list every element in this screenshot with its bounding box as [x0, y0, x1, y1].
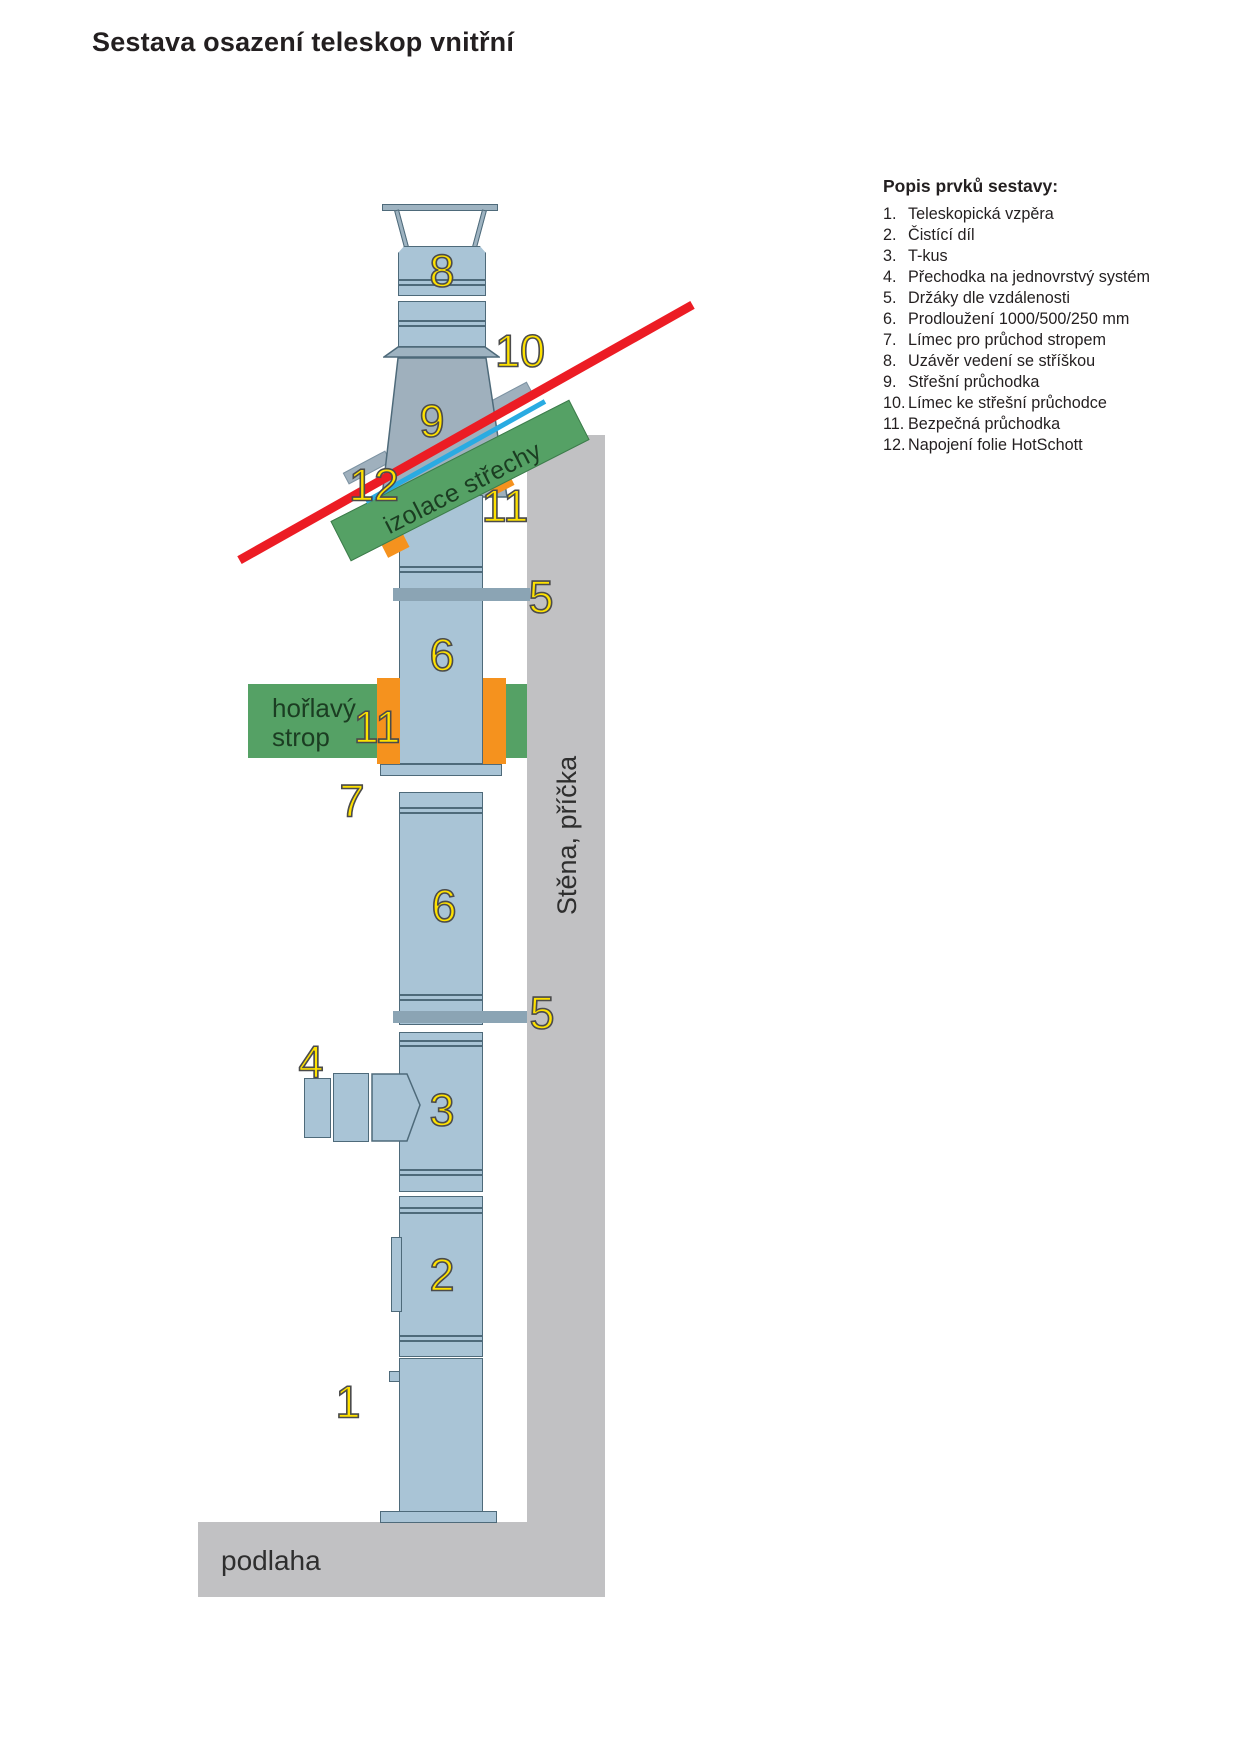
page-title: Sestava osazení teleskop vnitřní: [92, 27, 514, 58]
flammable-ceiling-label-line1: hořlavý: [272, 694, 356, 723]
joint-line: [399, 807, 483, 814]
cleaning-door: [391, 1237, 402, 1312]
callout-2: 2: [429, 1253, 454, 1298]
legend-item-num: 10.: [883, 393, 908, 414]
rain-cap-plate: [382, 204, 498, 211]
rain-cap-leg-left: [394, 209, 409, 249]
legend-item-text: Bezpečná průchodka: [908, 415, 1060, 433]
legend-heading: Popis prvků sestavy:: [883, 176, 1183, 197]
legend-item-1: 1.Teleskopická vzpěra: [883, 204, 1183, 225]
legend-item-text: Napojení folie HotSchott: [908, 436, 1083, 454]
flammable-ceiling-label-line2: strop: [272, 723, 356, 752]
callout-4: 4: [298, 1040, 323, 1085]
legend-item-num: 5.: [883, 288, 908, 309]
legend-item-12: 12.Napojení folie HotSchott: [883, 435, 1183, 456]
joint-line: [399, 566, 483, 573]
legend-item-5: 5.Držáky dle vzdálenosti: [883, 288, 1183, 309]
pipe-segment-base: [399, 1358, 483, 1512]
legend-item-text: Držáky dle vzdálenosti: [908, 289, 1070, 307]
callout-11-roof: 11: [482, 484, 529, 529]
legend-item-text: Límec ke střešní průchodce: [908, 394, 1107, 412]
callout-8: 8: [429, 249, 454, 294]
callout-7: 7: [339, 779, 364, 824]
legend-item-num: 4.: [883, 267, 908, 288]
legend-item-num: 11.: [883, 414, 908, 435]
legend: Popis prvků sestavy: 1.Teleskopická vzpě…: [883, 176, 1183, 456]
legend-item-10: 10.Límec ke střešní průchodce: [883, 393, 1183, 414]
floor-label: podlaha: [221, 1545, 321, 1577]
joint-line: [399, 1169, 483, 1176]
flammable-ceiling-label: hořlavý strop: [272, 694, 356, 752]
callout-10: 10: [495, 329, 545, 374]
legend-item-2: 2.Čistící díl: [883, 225, 1183, 246]
safe-penetration-block-right: [483, 678, 506, 764]
callout-11-ceiling: 11: [354, 705, 401, 750]
legend-item-text: Prodloužení 1000/500/250 mm: [908, 310, 1129, 328]
legend-item-num: 2.: [883, 225, 908, 246]
callout-12: 12: [349, 463, 399, 508]
branch-pointed-piece: [371, 1073, 421, 1142]
legend-item-num: 6.: [883, 309, 908, 330]
callout-6-upper: 6: [429, 633, 454, 678]
wall-bracket-upper: [393, 588, 530, 601]
legend-item-num: 9.: [883, 372, 908, 393]
base-flange: [380, 1511, 497, 1523]
legend-item-num: 1.: [883, 204, 908, 225]
legend-item-7: 7.Límec pro průchod stropem: [883, 330, 1183, 351]
legend-item-9: 9.Střešní průchodka: [883, 372, 1183, 393]
legend-item-8: 8.Uzávěr vedení se stříškou: [883, 351, 1183, 372]
legend-item-text: T-kus: [908, 247, 948, 265]
joint-line: [399, 1040, 483, 1047]
legend-item-text: Čistící díl: [908, 226, 975, 244]
legend-item-num: 8.: [883, 351, 908, 372]
legend-item-text: Přechodka na jednovrstvý systém: [908, 268, 1150, 286]
joint-line: [399, 1335, 483, 1342]
rain-cap-leg-right: [472, 209, 487, 249]
legend-item-4: 4.Přechodka na jednovrstvý systém: [883, 267, 1183, 288]
callout-1: 1: [335, 1380, 360, 1425]
legend-item-text: Teleskopická vzpěra: [908, 205, 1054, 223]
legend-item-6: 6.Prodloužení 1000/500/250 mm: [883, 309, 1183, 330]
legend-item-text: Střešní průchodka: [908, 373, 1039, 391]
callout-5-lower: 5: [529, 991, 554, 1036]
joint-line: [398, 320, 486, 327]
wall-bracket-lower: [393, 1011, 527, 1023]
branch-middle-piece: [333, 1073, 369, 1142]
wall-label: Stěna, příčka: [552, 690, 583, 915]
legend-item-num: 7.: [883, 330, 908, 351]
joint-line: [399, 1207, 483, 1214]
legend-item-text: Uzávěr vedení se stříškou: [908, 352, 1095, 370]
ceiling-collar: [380, 764, 502, 776]
legend-item-text: Límec pro průchod stropem: [908, 331, 1106, 349]
callout-5-upper: 5: [528, 575, 553, 620]
legend-item-11: 11.Bezpečná průchodka: [883, 414, 1183, 435]
strut-mount-tab: [389, 1371, 400, 1382]
callout-6-lower: 6: [431, 884, 456, 929]
legend-item-3: 3.T-kus: [883, 246, 1183, 267]
legend-list: 1.Teleskopická vzpěra 2.Čistící díl 3.T-…: [883, 204, 1183, 456]
callout-9: 9: [419, 399, 444, 444]
joint-line: [399, 994, 483, 1001]
diagram-page: Sestava osazení teleskop vnitřní: [0, 0, 1240, 1754]
callout-3: 3: [429, 1088, 454, 1133]
legend-item-num: 3.: [883, 246, 908, 267]
legend-item-num: 12.: [883, 435, 908, 456]
